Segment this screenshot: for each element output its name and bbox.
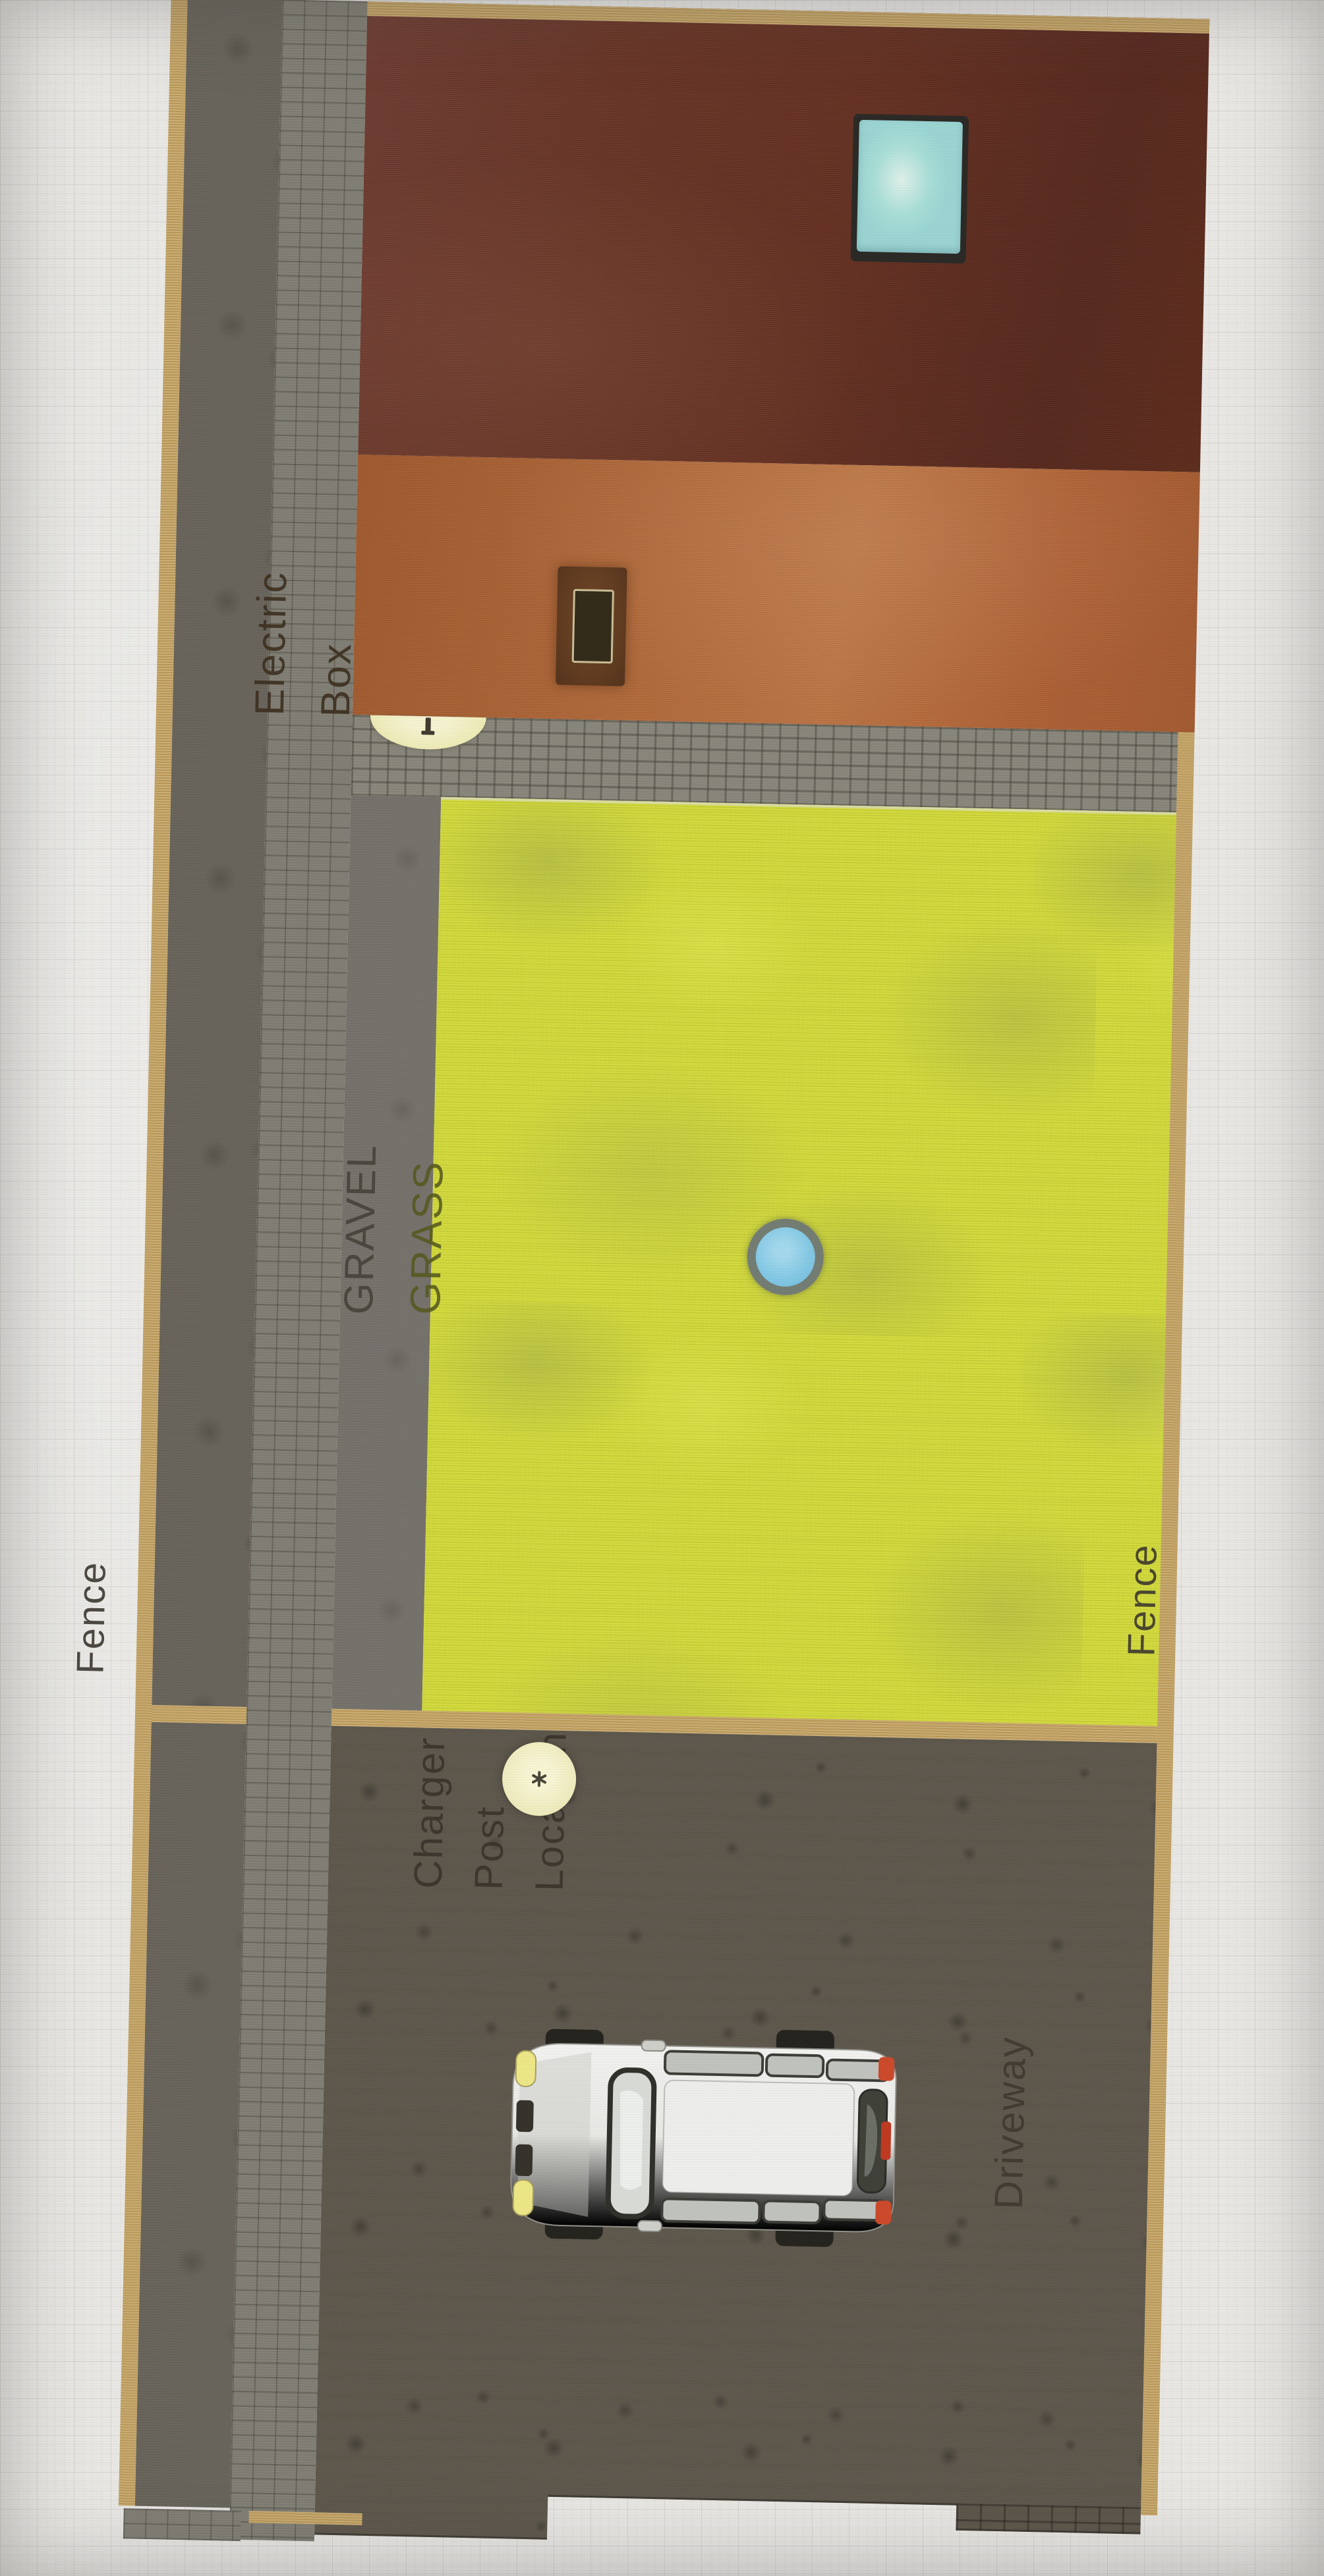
taillight-icon xyxy=(878,2057,895,2081)
electric-box-label-line1: Electric xyxy=(237,571,306,716)
side-mirror-icon xyxy=(642,2040,666,2052)
house-roof: Electric Box xyxy=(353,1,1209,733)
fence-line-bottom-segment xyxy=(248,2511,362,2525)
fence-left-label-text: Fence xyxy=(69,1561,114,1675)
driveway-label: Driveway xyxy=(987,2036,1034,2210)
brake-light-icon xyxy=(880,2121,891,2160)
charger-post-marker xyxy=(502,1741,577,1816)
driveway-label-text: Driveway xyxy=(987,2036,1034,2210)
gravel-label-text: GRAVEL xyxy=(336,1144,386,1315)
fence-left-label: Fence xyxy=(69,1561,114,1675)
car-top-view xyxy=(508,2024,898,2249)
headlight-icon xyxy=(515,2051,536,2087)
site-plan: Electric Box GRAVEL xyxy=(118,0,1210,2565)
roof-upper-slope xyxy=(358,1,1209,472)
gravel-label: GRAVEL xyxy=(336,1144,386,1315)
skylight-window xyxy=(850,114,969,264)
fence-line-mid-left-segment xyxy=(152,1705,247,1724)
fence-right-label-text: Fence xyxy=(1120,1543,1165,1657)
roof-lower-slope xyxy=(353,455,1200,733)
charger-asterisk-icon xyxy=(502,1741,577,1816)
electric-box-pin-bar-icon xyxy=(421,731,434,735)
skylight-glass xyxy=(857,120,963,254)
brick-stub-bottom-left xyxy=(123,2508,241,2541)
fence-right-label: Fence xyxy=(1120,1543,1165,1657)
electric-box-label-line2: Box xyxy=(303,572,372,717)
grass-label: GRASS xyxy=(401,1160,452,1316)
electric-box-label: Electric Box xyxy=(237,571,372,717)
chimney-vent xyxy=(556,566,627,686)
charger-label-line1: Charger xyxy=(398,1728,462,1890)
driveway-apron-right xyxy=(956,2504,1141,2534)
grass-label-text: GRASS xyxy=(401,1160,452,1316)
grill-icon xyxy=(515,2144,533,2177)
headlight-icon xyxy=(513,2180,533,2216)
car-roof-panel xyxy=(662,2080,854,2196)
grill-icon xyxy=(516,2100,534,2133)
photographed-screen: { "scene": { "type": "backyard site plan… xyxy=(0,0,1324,2576)
side-mirror-icon xyxy=(638,2220,662,2231)
taillight-icon xyxy=(875,2200,892,2224)
chimney-opening xyxy=(572,589,614,663)
